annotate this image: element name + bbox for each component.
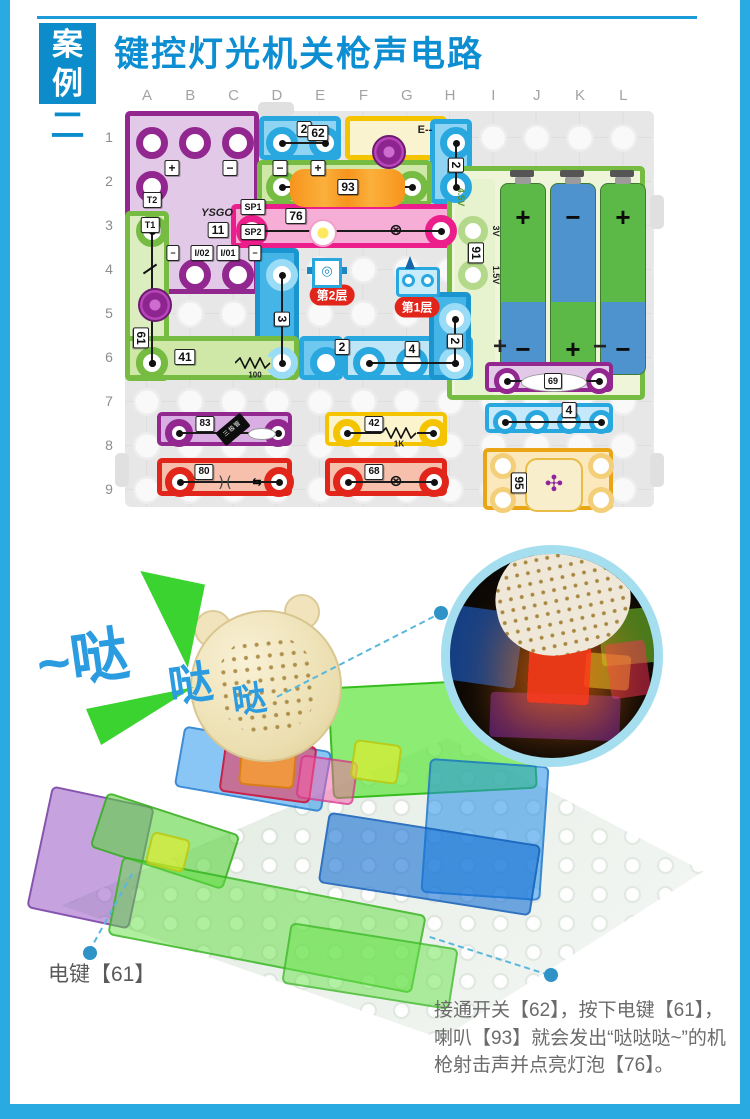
grid-row-number: 3: [101, 217, 117, 233]
grid-column-letter: J: [527, 87, 547, 104]
block-label: T2: [143, 192, 162, 208]
speaker-arcs-icon: )(: [218, 473, 234, 491]
wire-dot: [279, 272, 286, 279]
grid-column-letter: K: [570, 87, 590, 104]
grid-column-letter: A: [137, 87, 157, 104]
block-label: 3: [274, 312, 290, 327]
block-label: 61: [133, 327, 149, 348]
grid-row-number: 4: [101, 261, 117, 277]
wire-dot: [366, 360, 373, 367]
battery-contact: [560, 170, 584, 177]
block-label: 91: [468, 242, 484, 263]
grid-column-letter: G: [397, 87, 417, 104]
circuit-diagram: ABCDEFGHIJKL 123456789 +−−+T2T1SP1SP2YSG…: [125, 111, 661, 511]
block-label: 42: [364, 416, 383, 432]
block-label: 69: [544, 373, 562, 389]
block-label: 76: [285, 208, 306, 224]
grid-row-number: 8: [101, 437, 117, 453]
grid-column-letter: D: [267, 87, 287, 104]
connector-dot: [544, 968, 558, 982]
wire-dot: [452, 360, 459, 367]
brand-logo: YSGO: [201, 207, 233, 219]
grid-column-letter: C: [224, 87, 244, 104]
wire-dot: [276, 479, 283, 486]
block-label: 4: [405, 341, 420, 357]
circuit-block-res-42: 421K: [325, 412, 447, 446]
grid-column-letter: I: [483, 87, 503, 104]
stud: [179, 127, 211, 159]
wire-dot: [409, 184, 416, 191]
block-label: SP1: [240, 199, 265, 215]
grid-row-number: 2: [101, 173, 117, 189]
circuit-block-speaker-80: )(⇆80: [157, 458, 292, 496]
grid-row-number: 9: [101, 481, 117, 497]
block-label: 2: [335, 339, 350, 355]
photo-yellow-block: [349, 739, 402, 785]
stud: [136, 127, 168, 159]
sound-effect-char: ~哒: [31, 606, 134, 702]
block-label: −: [248, 245, 261, 261]
battery-terminal: [615, 177, 631, 184]
resistor-icon: [381, 427, 417, 439]
button-icon: [372, 135, 406, 169]
circuit-block-wire-4b: 4: [485, 403, 613, 433]
block-label: +: [310, 160, 325, 176]
circuit-block-motor-95: ✣95: [483, 448, 613, 510]
block-label: 93: [337, 179, 358, 195]
capsule-icon: [248, 428, 276, 440]
block-label: 2: [447, 334, 463, 349]
wire-line: [282, 142, 325, 144]
connector-dot: [434, 606, 448, 620]
block-label: +: [164, 160, 179, 176]
grid-column-letter: B: [180, 87, 200, 104]
diagram-float-label: E--: [418, 124, 433, 136]
wire-dot: [345, 479, 352, 486]
header-rule: [37, 16, 697, 19]
block-label: 2: [448, 158, 464, 173]
stud: [222, 259, 254, 291]
block-label: SP2: [240, 224, 265, 240]
stud: [179, 259, 211, 291]
baseplate-tab: [115, 453, 129, 487]
left-edge-bar: [0, 0, 10, 1119]
battery-polarity: +: [501, 202, 545, 233]
transistor-chip-icon: 三极管: [215, 413, 250, 447]
wire-dot: [598, 419, 605, 426]
grid-column-letter: F: [354, 87, 374, 104]
caption-text: 接通开关【62】，按下电键【61】，喇叭【93】就会发出“哒哒哒~”的机枪射击声…: [434, 997, 732, 1080]
battery-contact: [610, 170, 634, 177]
battery-polarity: +: [551, 334, 595, 365]
block-label: 4: [562, 402, 577, 418]
grid-row-number: 1: [101, 129, 117, 145]
block-label: 11: [208, 222, 229, 238]
diagram-float-label: 62: [307, 125, 328, 141]
block-label: 1.5V: [491, 266, 501, 285]
inset-content: [450, 554, 654, 758]
block-label: 68: [364, 464, 383, 480]
block-label: 100: [248, 371, 261, 380]
wire-dot: [430, 430, 437, 437]
wire-dot: [596, 378, 603, 385]
circuit-block-lamp-68: ⊗68: [325, 458, 447, 496]
stud: [458, 260, 488, 290]
wire-dot: [279, 184, 286, 191]
block-label: −: [222, 160, 237, 176]
key-61-label: 电键【61】: [48, 958, 155, 988]
motor-fan-icon: ✣: [525, 458, 583, 512]
grid-row-number: 7: [101, 393, 117, 409]
stud: [222, 127, 254, 159]
baseplate-tab: [650, 195, 664, 229]
battery-polarity: +: [601, 202, 645, 233]
wire-dot: [438, 228, 445, 235]
inset-pink-block: [604, 639, 651, 699]
case-badge: 案例: [39, 23, 96, 104]
block-label: 1K: [394, 440, 404, 449]
layer2-lamp-icon: ◎: [312, 258, 342, 288]
block-label: T1: [141, 217, 160, 233]
block-label: 83: [195, 416, 214, 432]
switch-icon: [143, 264, 157, 275]
wire-dot: [279, 360, 286, 367]
wire-line: [369, 362, 455, 364]
battery-cell: −+: [550, 183, 596, 375]
lamp-icon: [309, 219, 337, 247]
grid-row-number: 5: [101, 305, 117, 321]
circuit-block-wire-2b: 2: [299, 336, 343, 380]
circuit-block-fuse-69: 69: [485, 362, 613, 392]
detail-inset-photo: [441, 545, 663, 767]
grid-column-letter: L: [613, 87, 633, 104]
wire-dot: [177, 479, 184, 486]
circuit-block-chip-83: 三极管83: [157, 412, 292, 446]
wire-line: [505, 421, 601, 423]
grid-column-letter: E: [310, 87, 330, 104]
wire-dot: [502, 419, 509, 426]
wire-dot: [279, 140, 286, 147]
battery-polarity: −: [501, 334, 545, 365]
stud: [588, 453, 614, 479]
block-label: 80: [194, 464, 213, 480]
stud: [588, 487, 614, 513]
battery-contact: [510, 170, 534, 177]
wire-dot: [344, 430, 351, 437]
baseplate-tab: [258, 102, 294, 116]
arrow-up-icon: [405, 256, 415, 269]
mini-stud: [402, 274, 415, 287]
sound-effect-char: 哒: [229, 670, 269, 723]
lamp-symbol-icon: ⊗: [389, 223, 402, 239]
mode-icon: ⇆: [252, 476, 261, 489]
wire-dot: [453, 140, 460, 147]
footer-bar: [0, 1104, 750, 1119]
layer1-block-icon: [396, 267, 440, 297]
battery-polarity: −: [601, 334, 645, 365]
layer-badge: 第1层: [395, 297, 440, 318]
diagram-float-label: −: [593, 333, 607, 361]
block-label: 3V: [491, 225, 501, 236]
block-label: 41: [174, 349, 195, 365]
speaker-holes: [211, 629, 323, 741]
block-label: I/01: [216, 245, 239, 261]
grid-row-number: 6: [101, 349, 117, 365]
block-label: −: [166, 245, 179, 261]
wire-line: [252, 230, 441, 232]
block-label: I/02: [190, 245, 213, 261]
case-number: 二: [39, 104, 96, 149]
block-label: −: [272, 160, 287, 176]
wire-dot: [504, 378, 511, 385]
sound-effect-char: 哒: [164, 645, 216, 715]
battery-polarity: −: [551, 202, 595, 233]
baseplate-tab: [650, 453, 664, 487]
resistor-icon: [235, 357, 271, 369]
diagram-float-label: +: [493, 333, 507, 361]
block-label: 4.5V: [456, 188, 466, 207]
wire-dot: [452, 316, 459, 323]
battery-terminal: [565, 177, 581, 184]
page-title: 键控灯光机关枪声电路: [114, 26, 484, 77]
wire-dot: [431, 479, 438, 486]
wire-dot: [176, 430, 183, 437]
mini-stud: [421, 274, 434, 287]
block-label: 95: [511, 472, 527, 493]
battery-terminal: [515, 177, 531, 184]
button-icon: [138, 288, 172, 322]
circuit-block-wire-2: 2: [259, 116, 341, 160]
wire-dot: [149, 360, 156, 367]
lamp-symbol-icon: ⊗: [389, 474, 402, 490]
grid-column-letter: H: [440, 87, 460, 104]
right-edge-bar: [740, 0, 750, 1119]
case-badge-text: 案例: [52, 25, 83, 103]
